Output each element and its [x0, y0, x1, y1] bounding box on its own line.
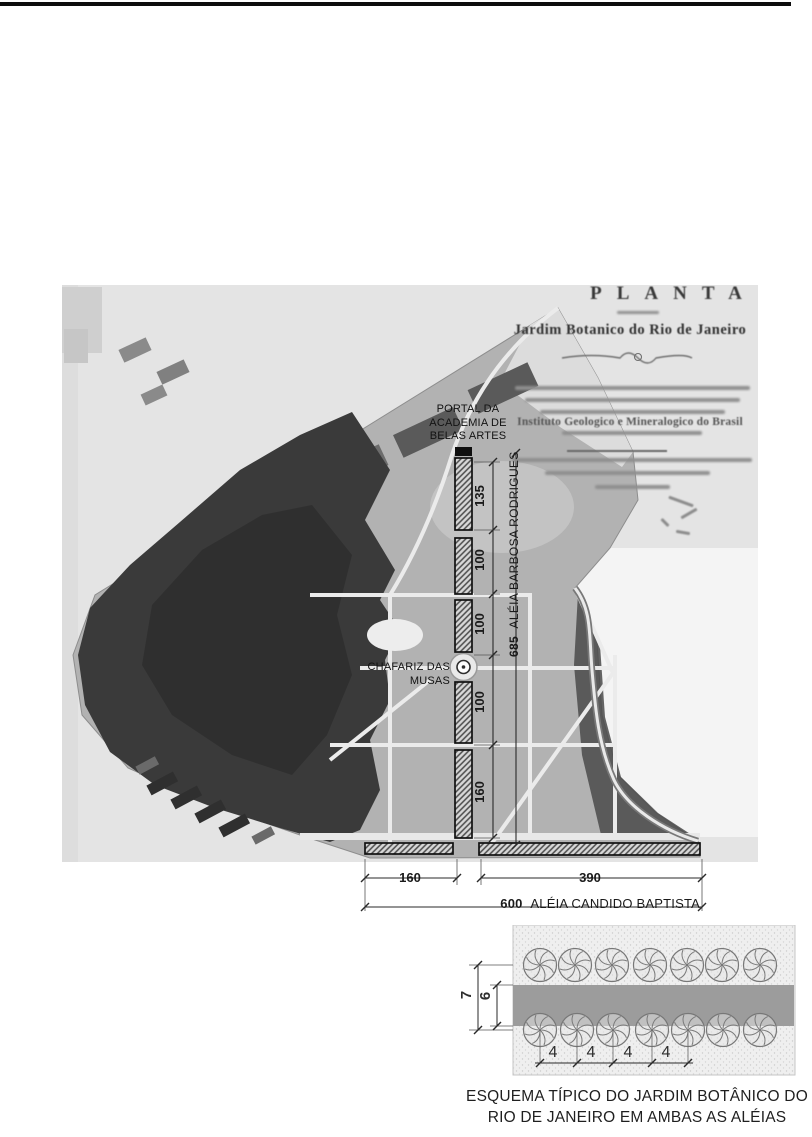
dim-h-seg-390: 390: [562, 871, 618, 885]
dim-h-seg-160: 160: [382, 871, 438, 885]
lawn-oval: [367, 619, 423, 651]
script-line: [540, 410, 725, 414]
alley-hatch-vertical: [455, 458, 472, 838]
script-line: [515, 386, 750, 390]
script-line: [525, 398, 740, 402]
title-divider: [567, 450, 667, 452]
dim-v-seg-160: 160: [473, 772, 487, 812]
schematic-dim-4d: 4: [657, 1044, 675, 1061]
schematic-dim-4c: 4: [619, 1044, 637, 1061]
bottom-road: [300, 833, 700, 840]
caption-line1: ESQUEMA TÍPICO DO JARDIM BOTÂNICO DO: [462, 1086, 812, 1107]
schematic-dim-4b: 4: [582, 1044, 600, 1061]
dim-v-seg-100c: 100: [473, 682, 487, 722]
alley-hatch-horizontal: [365, 843, 700, 855]
dim-v-total: 685: [507, 636, 521, 657]
map-institute-line: Instituto Geologico e Mineralogico do Br…: [503, 416, 757, 428]
portal-symbol: [455, 447, 472, 456]
portal-label: PORTAL DA ACADEMIA DE BELAS ARTES: [418, 403, 518, 444]
alley-barbosa-rodrigues-label: 685 ALÉIA BARBOSA RODRIGUES: [507, 457, 521, 657]
schematic-dim-4a: 4: [544, 1044, 562, 1061]
script-line: [562, 431, 702, 435]
alley-barbosa-rodrigues-name: ALÉIA BARBOSA RODRIGUES: [507, 451, 521, 628]
chafariz-label: CHAFARIZ DAS MUSAS: [338, 661, 450, 688]
script-flourish: [617, 311, 659, 314]
portal-label-line2: ACADEMIA DE: [418, 417, 518, 431]
script-line: [595, 485, 670, 489]
portal-label-line1: PORTAL DA: [418, 403, 518, 417]
dim-v-seg-100a: 100: [473, 540, 487, 580]
dim-v-seg-135: 135: [473, 476, 487, 516]
alley-candido-baptista-label: 600 ALÉIA CANDIDO BAPTISTA: [440, 896, 700, 911]
page-top-rule: [0, 2, 791, 6]
chafariz-icon: [450, 654, 477, 681]
caption-line2: RIO DE JANEIRO EM AMBAS AS ALÉIAS: [462, 1107, 812, 1128]
map-title: PLANTA: [566, 283, 766, 305]
document-page: PLANTA Jardim Botanico do Rio de Janeiro…: [0, 0, 812, 1137]
script-line: [545, 471, 710, 475]
schematic-dim-7: 7: [459, 986, 475, 1004]
map-graphic: [62, 285, 758, 925]
portal-label-line3: BELAS ARTES: [418, 430, 518, 444]
schematic-dim-6: 6: [478, 987, 494, 1005]
alley-candido-baptista-name: ALÉIA CANDIDO BAPTISTA: [530, 896, 700, 911]
dim-h-total-600: 600: [500, 896, 522, 911]
map-subtitle: Jardim Botanico do Rio de Janeiro: [505, 322, 755, 339]
script-line: [512, 458, 752, 462]
figure-caption: ESQUEMA TÍPICO DO JARDIM BOTÂNICO DO RIO…: [462, 1086, 812, 1128]
dim-v-seg-100b: 100: [473, 604, 487, 644]
